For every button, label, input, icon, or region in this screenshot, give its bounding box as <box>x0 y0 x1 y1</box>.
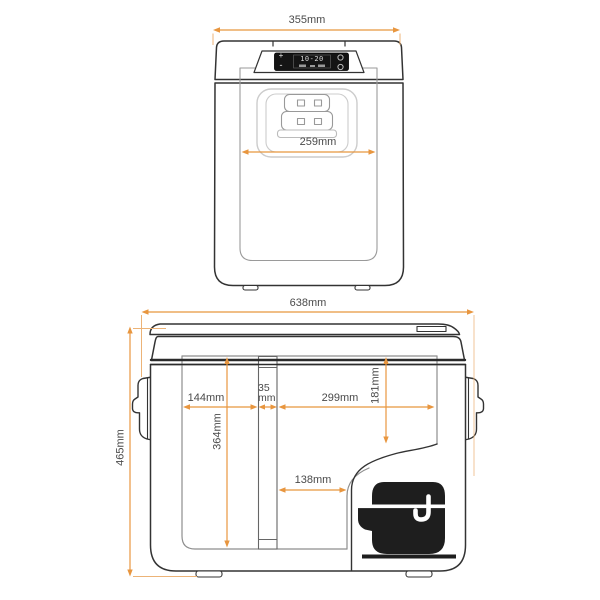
display-minus-button: - <box>276 61 286 70</box>
dim-label-interior-depth: 364mm <box>211 400 224 462</box>
dim-label-overall-length: 638mm <box>277 297 339 310</box>
dim-label-lid-recess-width: 259mm <box>287 136 349 149</box>
display-temperature-readout: 10-20 <box>295 54 329 65</box>
dim-638-arrow-left <box>142 309 149 314</box>
front-foot-right <box>355 286 370 291</box>
side-lid-hinge <box>417 327 446 332</box>
front-view-drawing <box>215 41 404 290</box>
dimension-diagram: 355mm 259mm 638mm 465mm 144mm 35 mm 299m… <box>0 0 600 600</box>
dim-465-arrow-top <box>127 327 132 334</box>
side-foot-right <box>406 571 432 577</box>
settings-button-icon <box>338 55 343 60</box>
dim-355-arrow-left <box>213 27 220 32</box>
side-lid-outline <box>150 324 460 335</box>
dim-label-right-depth: 181mm <box>369 354 382 416</box>
lid-latch-handle <box>278 95 337 138</box>
display-plus-button: + <box>276 51 286 60</box>
dim-label-divider-width: 35 mm <box>258 383 284 403</box>
side-view-drawing <box>133 324 484 577</box>
dim-label-compressor-side: 138mm <box>282 474 344 487</box>
dim-label-overall-height: 465mm <box>115 416 128 478</box>
front-foot-left <box>243 286 258 291</box>
dim-label-overall-width: 355mm <box>276 14 338 27</box>
dim-355-arrow-right <box>393 27 400 32</box>
side-handle-left <box>133 377 153 440</box>
dim-label-left-compartment: 144mm <box>175 392 237 405</box>
power-button-icon <box>338 64 343 69</box>
dim-465-arrow-bottom <box>127 570 132 577</box>
dim-638-arrow-right <box>467 309 474 314</box>
dim-label-right-compartment: 299mm <box>309 392 371 405</box>
side-foot-left <box>196 571 222 577</box>
